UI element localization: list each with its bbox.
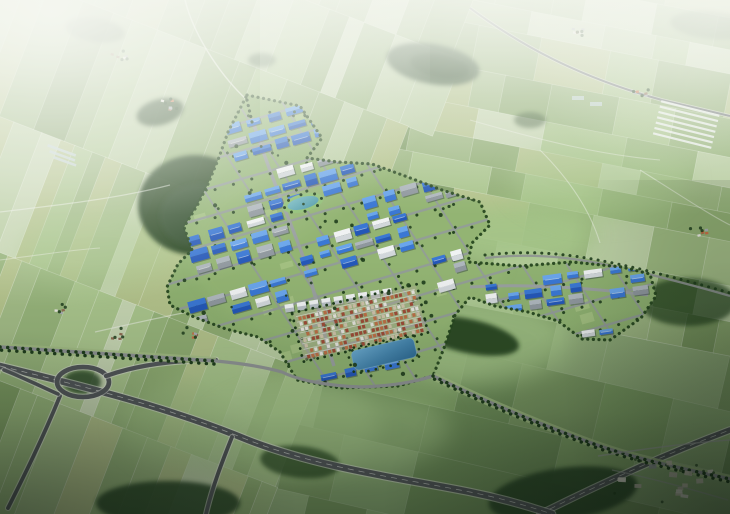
scene-svg	[0, 0, 730, 514]
aerial-rendering	[0, 0, 730, 514]
